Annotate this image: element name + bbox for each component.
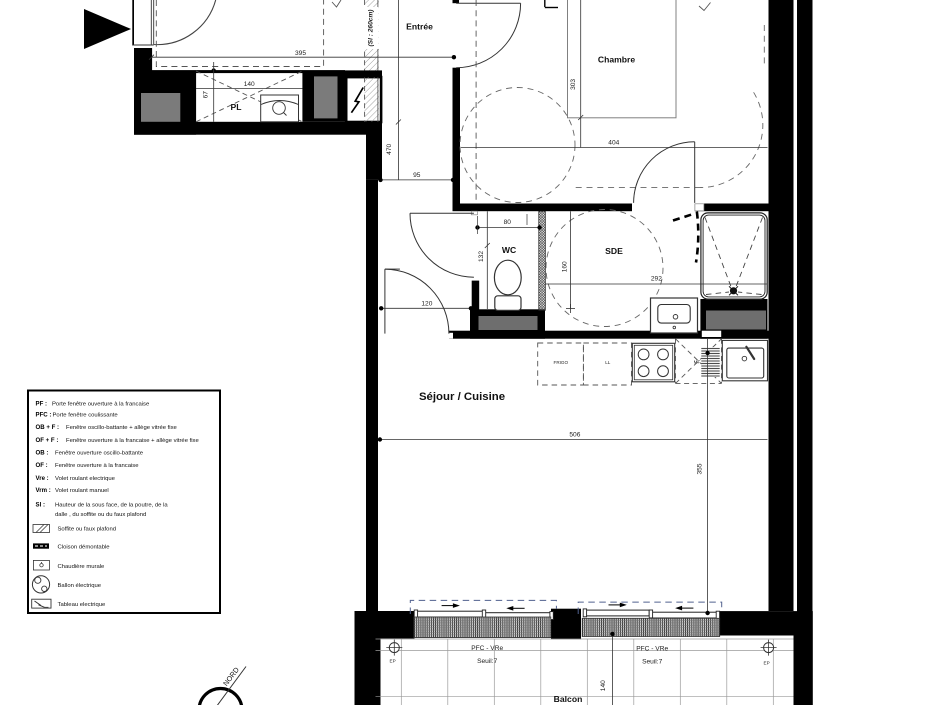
svg-text:404: 404 bbox=[608, 140, 619, 147]
svg-text:SI :: SI : bbox=[36, 501, 45, 508]
svg-text:PFC - VRe: PFC - VRe bbox=[636, 646, 668, 653]
svg-text:Tableau electrique: Tableau electrique bbox=[58, 602, 107, 608]
svg-text:Fenêtre ouverture à la francai: Fenêtre ouverture à la francaise + allèg… bbox=[66, 438, 199, 444]
svg-text:Séjour / Cuisine: Séjour / Cuisine bbox=[419, 391, 505, 403]
svg-text:Porte fenêtre coulissante: Porte fenêtre coulissante bbox=[53, 412, 119, 418]
svg-text:PF :: PF : bbox=[36, 400, 48, 407]
svg-text:Seuil:7: Seuil:7 bbox=[477, 658, 497, 665]
svg-text:LL: LL bbox=[605, 360, 611, 365]
svg-text:(SI : 260cm): (SI : 260cm) bbox=[368, 9, 375, 46]
svg-text:395: 395 bbox=[295, 50, 306, 57]
svg-text:OB + F :: OB + F : bbox=[36, 424, 60, 431]
svg-text:303: 303 bbox=[570, 79, 577, 90]
svg-text:Fenêtre ouverture à la francai: Fenêtre ouverture à la francaise bbox=[55, 463, 139, 469]
svg-text:MF: MF bbox=[694, 360, 701, 365]
svg-text:470: 470 bbox=[386, 143, 393, 154]
svg-text:OB :: OB : bbox=[36, 450, 49, 457]
svg-text:Cloison démontable: Cloison démontable bbox=[58, 545, 111, 551]
svg-text:Volet roulant electrique: Volet roulant electrique bbox=[55, 476, 116, 482]
svg-text:160: 160 bbox=[561, 261, 568, 272]
svg-text:292: 292 bbox=[651, 276, 662, 283]
svg-text:95: 95 bbox=[413, 172, 421, 179]
svg-text:140: 140 bbox=[600, 680, 607, 691]
svg-text:Seuil:7: Seuil:7 bbox=[642, 659, 662, 666]
svg-text:Soffite ou faux plafond: Soffite ou faux plafond bbox=[58, 526, 117, 532]
svg-text:Entrée: Entrée bbox=[406, 22, 433, 32]
svg-text:Porte fenêtre ouverture à la f: Porte fenêtre ouverture à la francaise bbox=[52, 401, 150, 407]
svg-text:Fenêtre ouverture oscillo-batt: Fenêtre ouverture oscillo-battante bbox=[55, 451, 144, 457]
svg-text:140: 140 bbox=[244, 81, 255, 88]
svg-text:120: 120 bbox=[421, 300, 432, 307]
svg-text:Vre :: Vre : bbox=[36, 475, 49, 482]
svg-text:Fenêtre oscillo-battante + all: Fenêtre oscillo-battante + allège vitrée… bbox=[66, 425, 178, 431]
svg-text:132: 132 bbox=[478, 251, 485, 262]
svg-text:Vrm :: Vrm : bbox=[36, 487, 51, 494]
svg-text:PL: PL bbox=[231, 102, 242, 112]
svg-text:Balcon: Balcon bbox=[554, 694, 583, 704]
svg-text:Ballon électrique: Ballon électrique bbox=[58, 583, 102, 589]
svg-text:OF :: OF : bbox=[36, 462, 48, 469]
svg-text:355: 355 bbox=[697, 463, 704, 474]
svg-text:OF + F :: OF + F : bbox=[36, 437, 59, 444]
svg-text:Chaudière murale: Chaudière murale bbox=[58, 564, 106, 570]
svg-text:PFC - VRe: PFC - VRe bbox=[471, 645, 503, 652]
svg-text:Chambre: Chambre bbox=[598, 55, 635, 65]
svg-text:Hauteur de la sous face, de la: Hauteur de la sous face, de la poutre, d… bbox=[55, 502, 168, 508]
svg-text:dalle , du soffite ou du faux: dalle , du soffite ou du faux plafond bbox=[55, 512, 146, 518]
svg-text:67: 67 bbox=[203, 91, 210, 99]
svg-text:Volet roulant manuel: Volet roulant manuel bbox=[55, 488, 109, 494]
svg-text:506: 506 bbox=[569, 431, 580, 438]
svg-text:PFC :: PFC : bbox=[36, 411, 52, 418]
svg-text:FRIGO: FRIGO bbox=[554, 360, 569, 365]
svg-text:EP: EP bbox=[764, 661, 770, 666]
svg-text:80: 80 bbox=[504, 219, 512, 226]
svg-text:WC: WC bbox=[502, 245, 516, 255]
svg-text:EP: EP bbox=[390, 659, 396, 664]
svg-text:SDE: SDE bbox=[605, 246, 623, 256]
